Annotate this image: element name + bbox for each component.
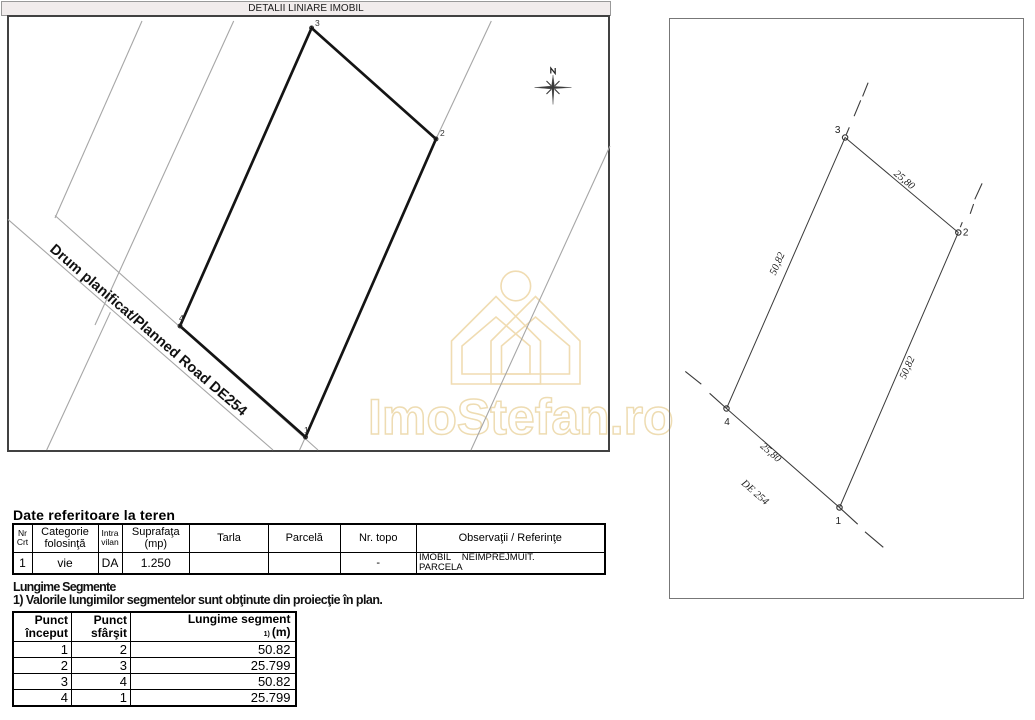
svg-text:4: 4 <box>724 417 730 428</box>
svg-text:25,80: 25,80 <box>758 441 784 465</box>
svg-text:3: 3 <box>835 125 841 136</box>
svg-text:50,82: 50,82 <box>768 250 788 277</box>
svg-text:50,82: 50,82 <box>898 354 918 381</box>
svg-text:2: 2 <box>963 227 969 238</box>
svg-text:DE 254: DE 254 <box>738 477 771 508</box>
svg-text:25,80: 25,80 <box>891 168 917 192</box>
svg-text:1: 1 <box>836 516 842 527</box>
